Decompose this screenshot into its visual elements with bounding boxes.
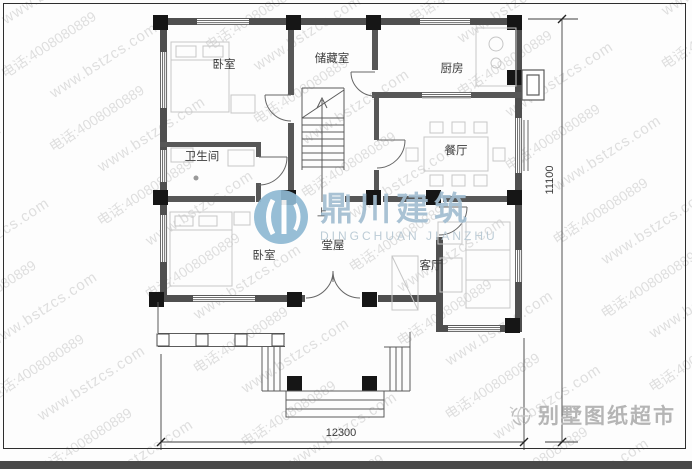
dimension-width-label: 12300 [326,427,357,439]
room-label-dining: 餐厅 [445,143,468,157]
brand-label: 别墅图纸超市 [538,400,676,430]
interior-walls [160,25,522,202]
room-label-bedroom-top: 卧室 [213,57,236,71]
floor-plan-page: www.bstzcs.com 电话:4008080889 www.bstzcs.… [0,0,692,469]
chimney [522,70,544,100]
bottom-divider-bar [0,461,692,469]
room-label-bathroom: 卫生间 [185,149,220,163]
stairs-up-label: 上 [317,207,327,219]
brand-globe-icon [508,403,532,427]
floor-plan-svg: 卧室 储藏室 厨房 卫生间 餐厅 卧室 堂屋 客厅 上 12300 11100 [0,0,692,469]
porch [157,302,410,417]
room-label-hall: 堂屋 [322,239,345,252]
brand-footer: 别墅图纸超市 [508,400,676,430]
room-label-bedroom-bottom: 卧室 [253,248,276,262]
dimension-height-label: 11100 [544,166,556,195]
room-labels: 卧室 储藏室 厨房 卫生间 餐厅 卧室 堂屋 客厅 上 [185,51,468,272]
room-label-storage: 储藏室 [315,51,350,65]
room-label-living: 客厅 [420,258,443,272]
stairs [302,88,344,202]
room-label-kitchen: 厨房 [441,62,464,75]
